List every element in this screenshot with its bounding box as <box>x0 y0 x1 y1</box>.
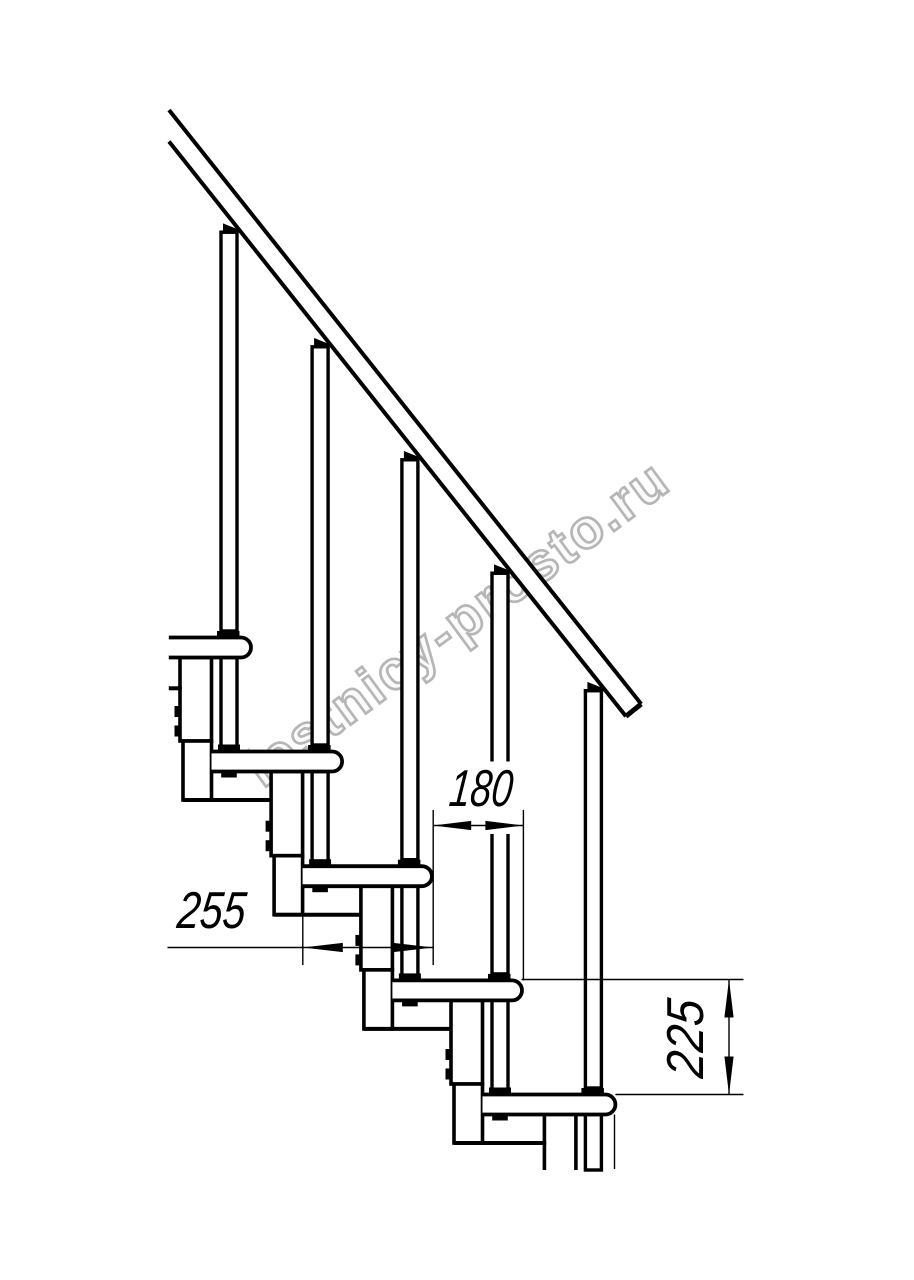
svg-text:255: 255 <box>174 882 250 940</box>
svg-text:225: 225 <box>657 995 715 1081</box>
svg-text:180: 180 <box>447 760 516 818</box>
